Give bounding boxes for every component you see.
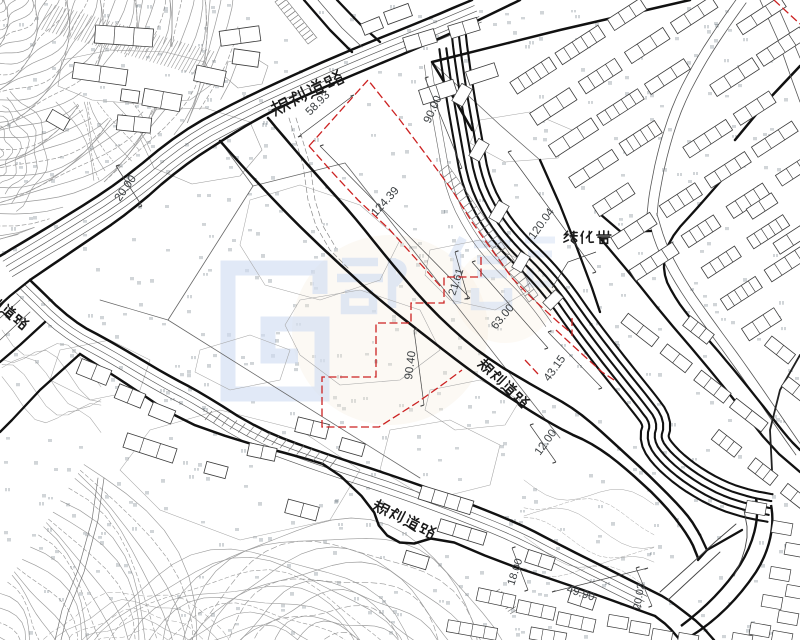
- svg-text:12.00: 12.00: [533, 427, 560, 457]
- svg-text:124.39: 124.39: [369, 185, 401, 219]
- svg-text:43.15: 43.15: [542, 353, 569, 383]
- svg-text:18.00: 18.00: [505, 557, 525, 587]
- svg-text:20.02: 20.02: [631, 582, 647, 610]
- svg-text:120.04: 120.04: [527, 206, 558, 242]
